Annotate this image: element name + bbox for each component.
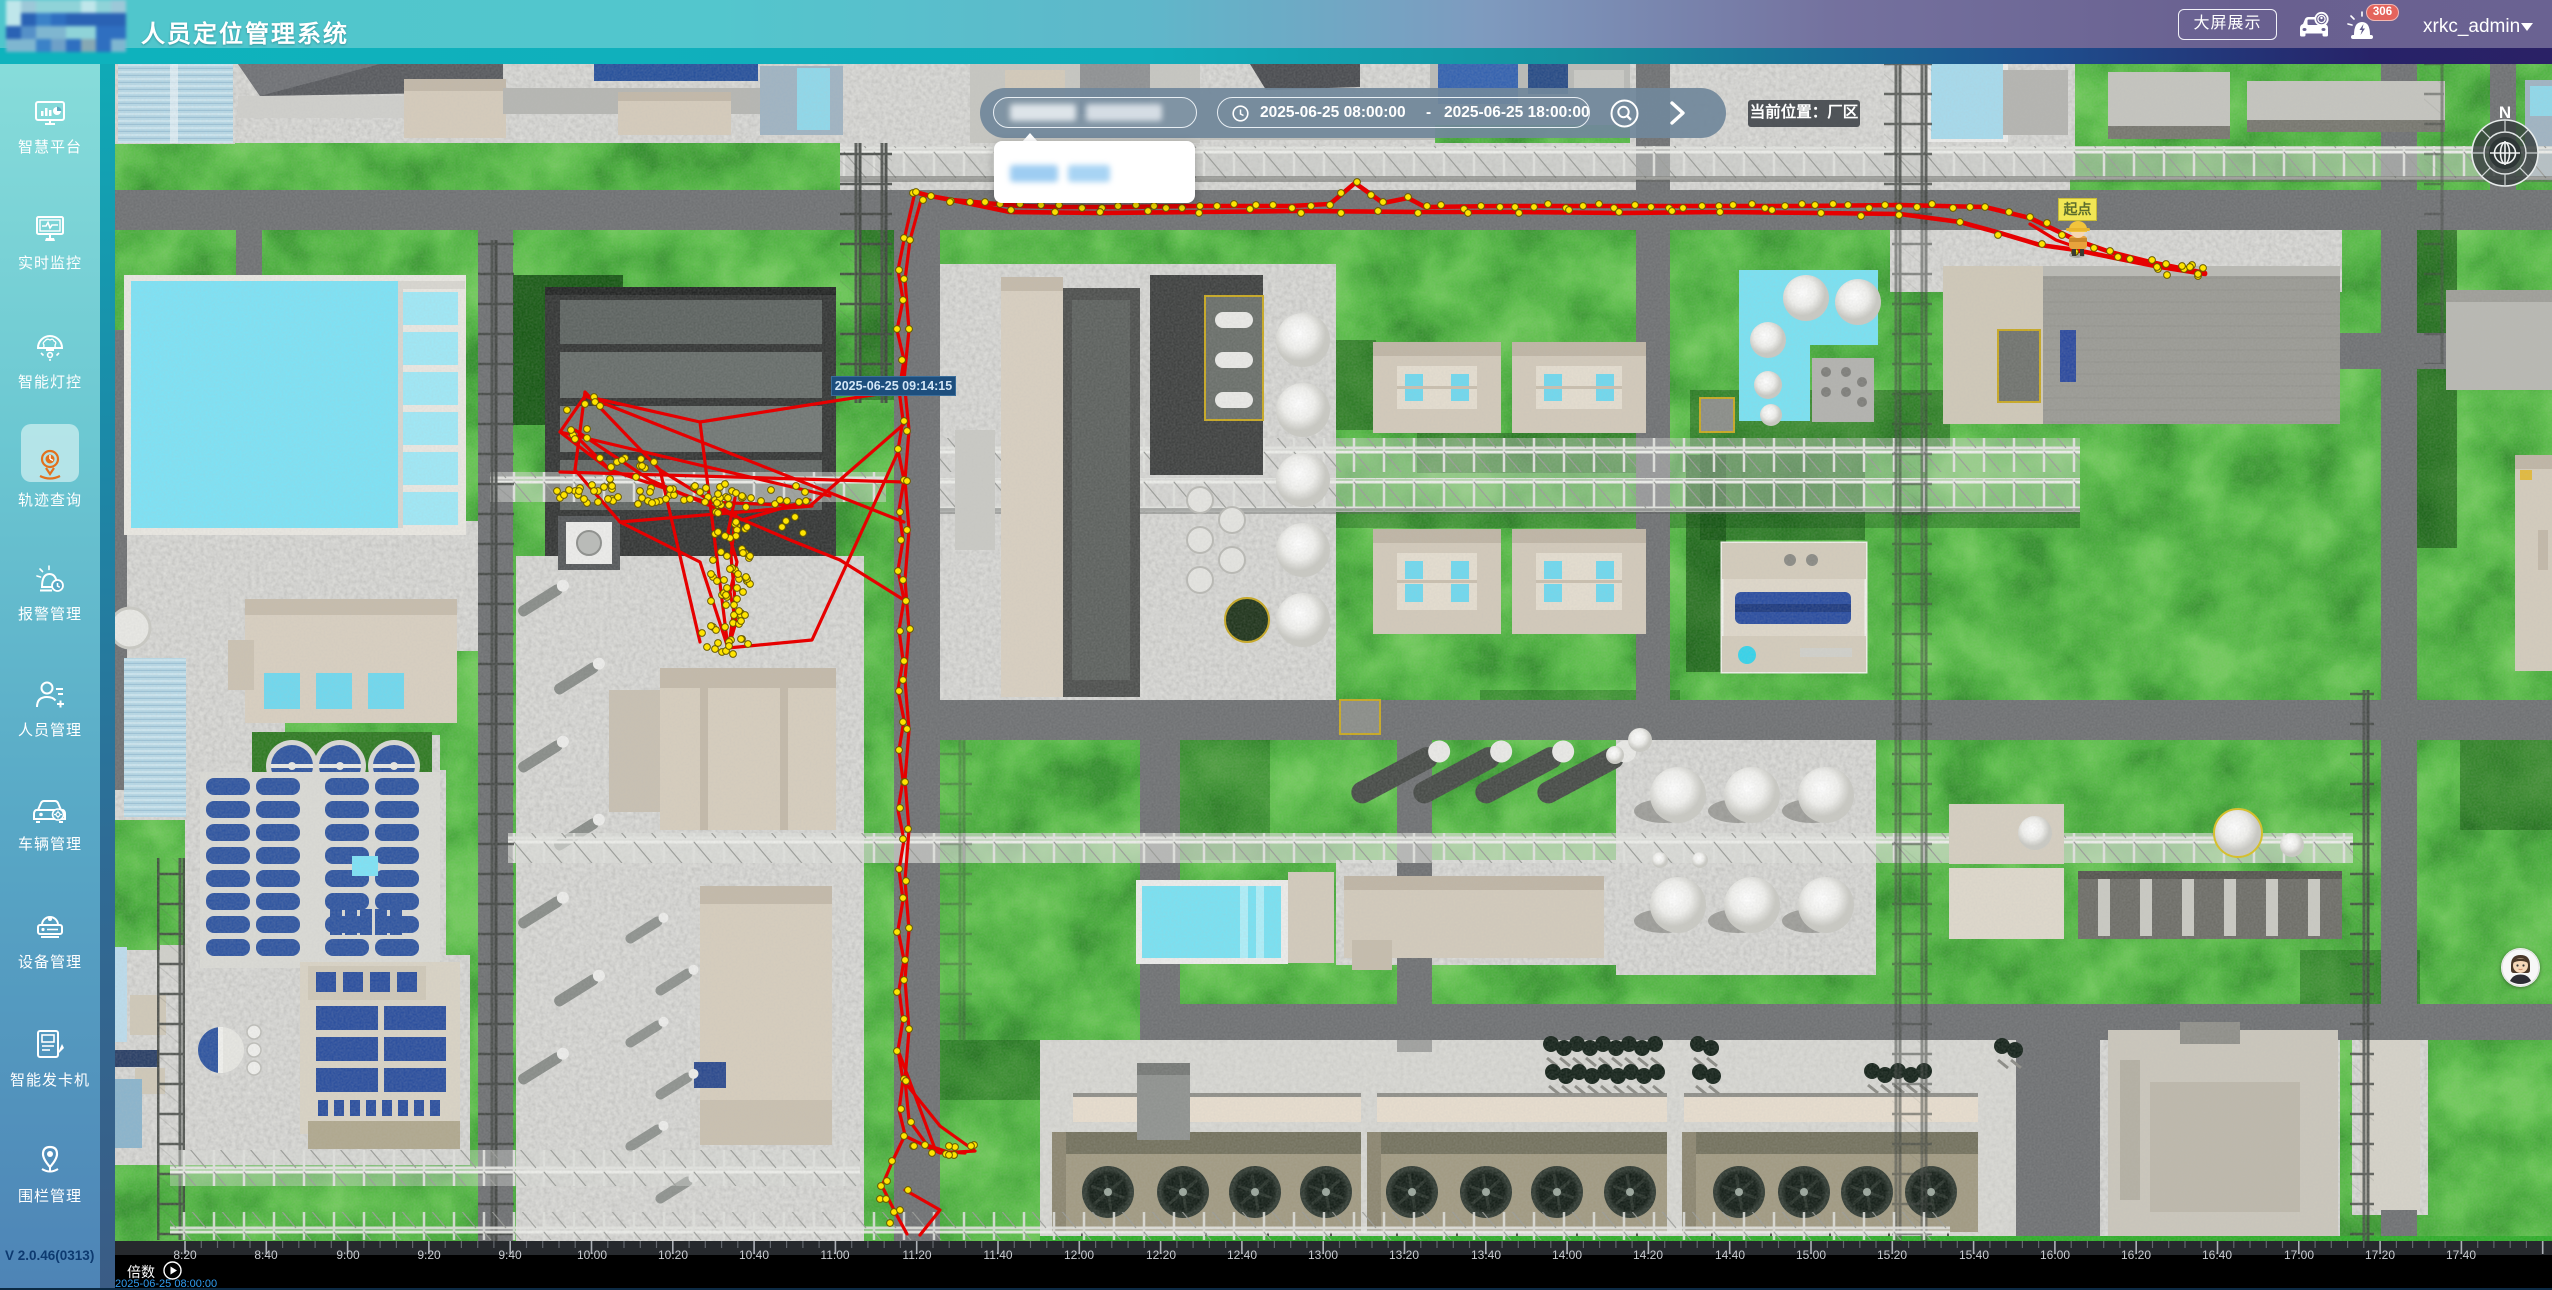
svg-text:N: N (2499, 103, 2511, 122)
